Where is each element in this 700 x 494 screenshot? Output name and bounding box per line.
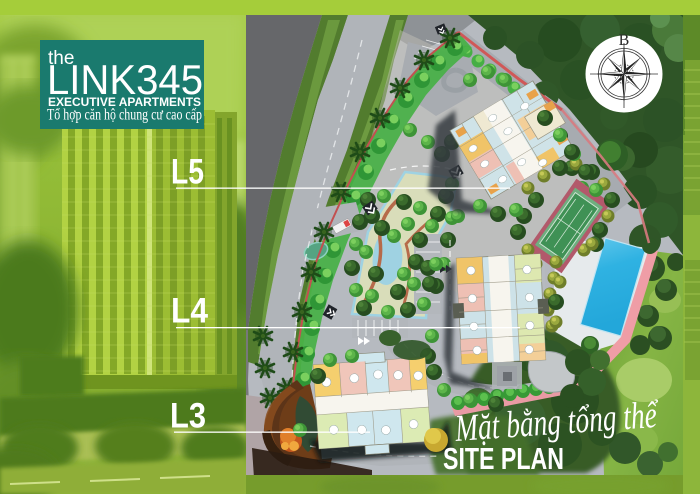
svg-text:SITE PLAN: SITE PLAN — [443, 441, 564, 476]
svg-text:L5: L5 — [171, 153, 204, 192]
svg-text:L3: L3 — [170, 397, 206, 436]
svg-text:B: B — [619, 32, 630, 49]
svg-text:L4: L4 — [171, 292, 208, 331]
svg-text:Tổ hợp căn hộ chung cư cao cấp: Tổ hợp căn hộ chung cư cao cấp — [47, 107, 202, 124]
